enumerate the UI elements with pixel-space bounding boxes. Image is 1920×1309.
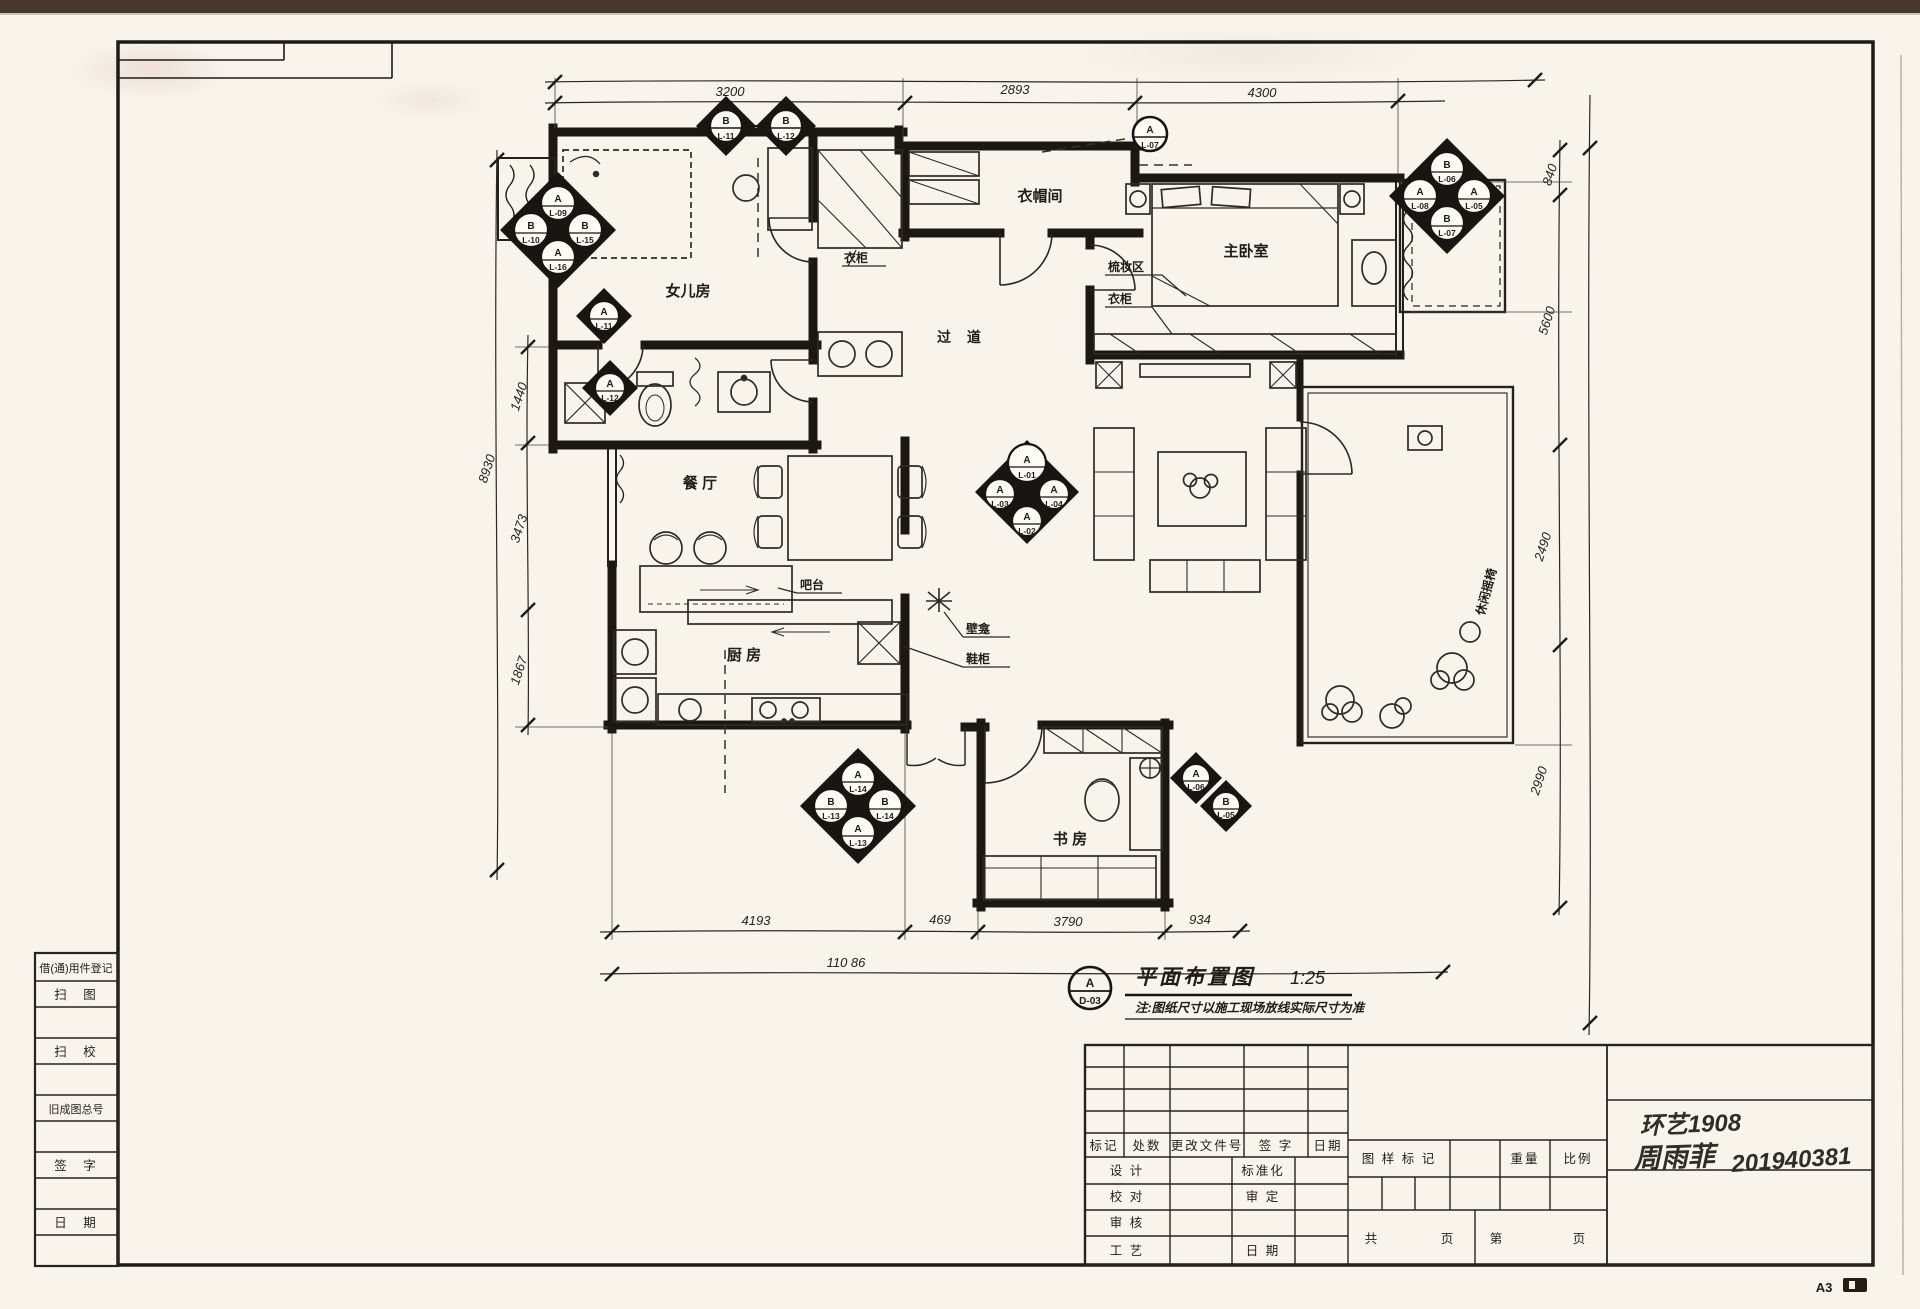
title-block: 标记 处数 更改文件号 签 字 日期 设 计 校 对 审 核 工 艺 标准化 审… [1085, 1045, 1873, 1265]
marker-letter: A [1470, 187, 1477, 198]
entry-double-door [907, 727, 965, 766]
marker-letter: A [1023, 455, 1030, 466]
sheet-size-group: A3 [1816, 1278, 1867, 1295]
marker-code: L-14 [849, 784, 867, 794]
scan-edge-shadow [0, 13, 1920, 15]
marker-letter: A [1146, 125, 1153, 136]
dim-right-3: 2490 [1531, 530, 1555, 564]
tb-date: 日期 [1313, 1139, 1342, 1153]
tb-sign: 签 字 [1259, 1138, 1293, 1153]
marker-letter: A [854, 824, 861, 835]
marker-cluster-top-right: B L-06 A L-08 A L-05 B L-07 [1389, 138, 1505, 254]
marker-code: L-13 [822, 811, 840, 821]
tb-stamp-mark: 图 样 标 记 [1362, 1151, 1436, 1166]
bar-stool [650, 532, 682, 564]
marker-code: L-12 [777, 131, 795, 141]
plant-symbol [926, 588, 952, 612]
marker-code: L-11 [717, 131, 734, 141]
handwritten-student-id: 201940381 [1730, 1143, 1853, 1178]
sofa-bottom [1150, 560, 1260, 592]
bar-stool [694, 532, 726, 564]
tb-weight: 重量 [1510, 1151, 1539, 1166]
marker-letter: A [600, 307, 607, 318]
marker-cluster-center: A L-01 A L-03 A L-04 A L-02 [975, 440, 1079, 544]
tb-standard: 标准化 [1241, 1164, 1285, 1178]
dim-left-total: 8930 [475, 452, 498, 485]
tb-craft: 工 艺 [1110, 1244, 1144, 1258]
study-couch [984, 856, 1156, 900]
room-label-cloak: 衣帽间 [1017, 187, 1062, 205]
toilet [639, 384, 671, 426]
drawing-title: 平面布置图 [1135, 965, 1255, 989]
room-label-daughter: 女儿房 [665, 282, 710, 300]
marker-code: L-02 [1018, 526, 1036, 536]
handwritten-name: 周雨菲 [1632, 1141, 1720, 1174]
marker-letter: B [527, 221, 534, 232]
daughter-chair [733, 175, 759, 201]
balcony-plants [1322, 622, 1480, 728]
tb-mark: 标记 [1089, 1139, 1118, 1153]
dim-right-1: 840 [1539, 161, 1560, 187]
room-label-dining: 餐 厅 [683, 474, 717, 492]
marker-letter: A [996, 485, 1003, 496]
tb-design: 设 计 [1110, 1163, 1144, 1178]
label-shoe-cabinet: 鞋柜 [966, 651, 990, 666]
scan-corner-blob-notch [1849, 1281, 1855, 1289]
label-wardrobe-2: 衣柜 [1108, 291, 1132, 306]
tb-doc-no: 更改文件号 [1171, 1138, 1244, 1153]
elevation-markers: B L-11 B L-12 A L-07 B L-06 [500, 96, 1505, 864]
marker-code: L-04 [1045, 499, 1063, 509]
scan-fold-line [1901, 55, 1903, 1275]
dim-bottom-total: 110 86 [827, 955, 867, 970]
label-dresser: 梳妆区 [1108, 259, 1144, 274]
tb-count: 处数 [1132, 1138, 1161, 1153]
marker-letter: B [827, 797, 834, 808]
windows-and-balconies [498, 158, 1513, 743]
reg-row-borrow: 借(通)用件登记 [39, 961, 112, 975]
marker-code: L-16 [549, 262, 567, 272]
handwritten-class: 环艺1908 [1639, 1109, 1742, 1140]
dim-bottom-4: 934 [1189, 912, 1211, 927]
bar-counter [640, 566, 792, 612]
reg-row-proof: 扫 校 [54, 1044, 98, 1059]
marker-code: L-06 [1438, 174, 1456, 184]
marker-code: L-01 [1018, 470, 1036, 480]
title-marker-code: D-03 [1079, 996, 1101, 1007]
label-balcony-chair: 休闲摇椅 [1472, 567, 1499, 618]
marker-letter: B [1222, 797, 1229, 808]
marker-letter: A [1050, 485, 1057, 496]
label-wardrobe-1: 衣柜 [844, 250, 868, 265]
marker-code: L-12 [601, 393, 619, 403]
marker-letter: B [782, 116, 789, 127]
coffee-table [1158, 452, 1246, 526]
tb-page2: 页 [1573, 1232, 1588, 1246]
marker-letter: A [1416, 187, 1423, 198]
marker-circle-l07: A L-07 [1133, 117, 1167, 151]
room-label-study: 书 房 [1053, 830, 1087, 848]
marker-code: L-05 [1217, 810, 1235, 820]
tb-proof: 校 对 [1110, 1189, 1144, 1204]
marker-code: L-07 [1438, 228, 1456, 238]
title-marker-letter: A [1086, 976, 1095, 990]
marker-letter: B [1443, 160, 1450, 171]
dim-top-1: 3200 [716, 84, 746, 99]
marker-code: L-13 [849, 838, 867, 848]
room-label-master: 主卧室 [1223, 242, 1268, 260]
tb-no: 第 [1490, 1232, 1505, 1246]
dim-left-3: 1867 [507, 654, 530, 687]
marker-code: L-05 [1465, 201, 1483, 211]
tv [1140, 364, 1250, 377]
walls [553, 128, 1400, 907]
marker-cluster-left: A L-09 B L-10 B L-15 A L-16 [500, 172, 616, 288]
dim-bottom-2: 469 [929, 912, 951, 927]
room-labels: 女儿房 衣帽间 过 道 主卧室 餐 厅 厨 房 书 房 [665, 187, 1268, 848]
marker-pair-study: A L-06 B L-05 [1170, 752, 1252, 832]
marker-code: L-11 [595, 321, 612, 331]
tb-review: 审 核 [1110, 1215, 1144, 1230]
marker-code: L-15 [576, 235, 594, 245]
dining-table [788, 456, 892, 560]
scan-edge-top [0, 0, 1920, 13]
label-niche: 壁龛 [966, 621, 991, 636]
study-desk [1130, 758, 1162, 850]
registration-table: 借(通)用件登记 扫 图 扫 校 旧成图总号 签 字 日 期 [35, 953, 118, 1266]
marker-letter: A [606, 379, 613, 390]
marker-code: L-08 [1411, 201, 1429, 211]
dim-top-3: 4300 [1248, 85, 1278, 100]
dim-right-2: 5600 [1535, 304, 1558, 337]
label-bar: 吧台 [800, 577, 824, 592]
dim-top-2: 2893 [1000, 82, 1031, 97]
drawing-scale: 1:25 [1290, 968, 1326, 988]
tb-page: 页 [1441, 1232, 1456, 1246]
marker-cluster-bottom: A L-14 B L-13 B L-14 A L-13 [800, 748, 916, 864]
tb-date2: 日 期 [1246, 1244, 1280, 1258]
marker-code: L-09 [549, 208, 567, 218]
annotation-labels: 衣柜 梳妆区 衣柜 吧台 壁龛 鞋柜 休闲摇椅 [778, 250, 1499, 667]
stove [752, 698, 820, 722]
scanned-drawing-sheet: 借(通)用件登记 扫 图 扫 校 旧成图总号 签 字 日 期 [0, 0, 1920, 1309]
reg-row-scan: 扫 图 [54, 988, 98, 1002]
dim-bottom-1: 4193 [742, 913, 772, 928]
kitchen-sink [679, 699, 701, 721]
dining-chairs [754, 466, 926, 548]
marker-letter: B [581, 221, 588, 232]
tb-scale: 比例 [1563, 1152, 1592, 1166]
marker-letter: A [554, 248, 561, 259]
sheet-size-label: A3 [1816, 1280, 1833, 1295]
marker-code: L-03 [991, 499, 1009, 509]
reg-row-date: 日 期 [54, 1216, 98, 1230]
corridor-counter [818, 332, 902, 376]
room-label-kitchen: 厨 房 [727, 646, 761, 664]
tb-total: 共 [1365, 1232, 1380, 1246]
marker-code: L-07 [1141, 140, 1159, 150]
marker-single-l11: A L-11 [576, 288, 632, 344]
marker-letter: A [1192, 769, 1199, 780]
marker-letter: A [554, 194, 561, 205]
dresser [1352, 240, 1396, 306]
dim-bottom-3: 3790 [1054, 914, 1084, 929]
marker-letter: A [1023, 512, 1030, 523]
dim-right-4: 2990 [1527, 764, 1551, 798]
marker-pair-top: B L-11 B L-12 [696, 96, 816, 156]
tb-approve: 审 定 [1246, 1189, 1280, 1204]
drawing-note: 注:图纸尺寸以施工现场放线实际尺寸为准 [1135, 1001, 1367, 1015]
marker-code: L-06 [1187, 782, 1205, 792]
marker-letter: B [722, 116, 729, 127]
doors [598, 218, 1352, 783]
marker-code: L-14 [876, 811, 894, 821]
marker-letter: B [881, 797, 888, 808]
reg-row-sign: 签 字 [54, 1158, 98, 1173]
floor-plan-sheet-svg: 借(通)用件登记 扫 图 扫 校 旧成图总号 签 字 日 期 [0, 0, 1920, 1309]
marker-letter: B [1443, 214, 1450, 225]
sheet-frame [118, 42, 1873, 1265]
marker-code: L-10 [522, 235, 540, 245]
dining-curtain-squiggle [617, 455, 624, 503]
reg-row-old-no: 旧成图总号 [49, 1102, 104, 1116]
room-label-hall: 过 道 [937, 329, 987, 345]
marker-letter: A [854, 770, 861, 781]
sofa-left [1094, 428, 1134, 560]
